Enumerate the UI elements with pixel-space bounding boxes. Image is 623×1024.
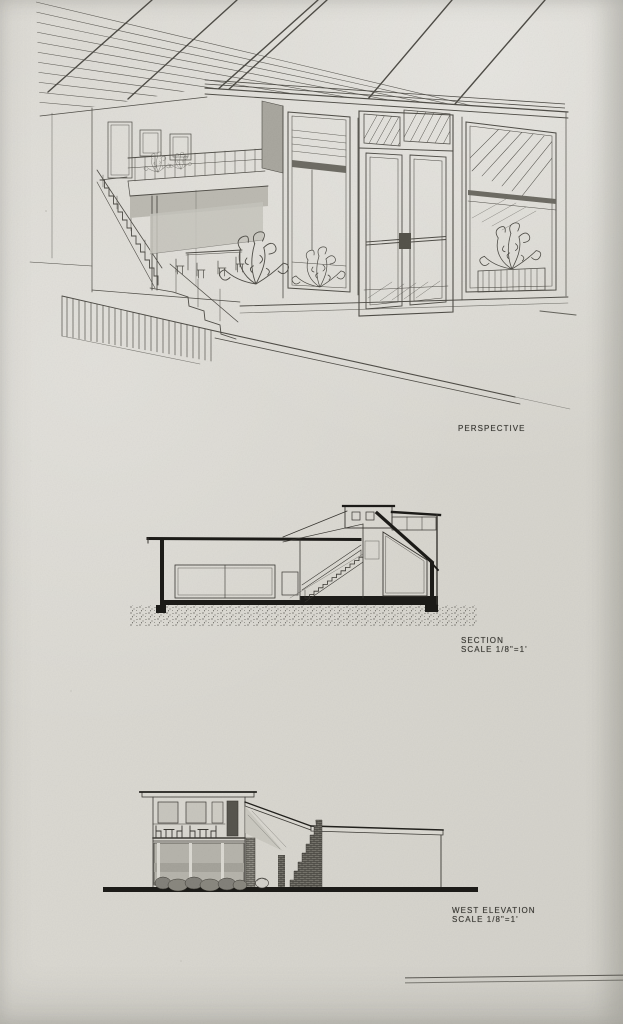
double-door bbox=[359, 111, 453, 316]
elevation-left-block bbox=[140, 792, 256, 888]
left-wall-poche bbox=[160, 538, 164, 605]
section-drawing bbox=[130, 486, 480, 638]
clerestory-glazing bbox=[392, 517, 436, 530]
elevation-right-wing bbox=[245, 802, 443, 887]
door-handle bbox=[399, 233, 411, 249]
brick-chimney bbox=[290, 820, 322, 888]
glass-wall bbox=[240, 101, 568, 316]
section-title: SECTION bbox=[461, 636, 528, 645]
foreground bbox=[62, 264, 576, 409]
right-footing bbox=[425, 604, 438, 612]
clerestory-monitor bbox=[343, 506, 394, 528]
footer-rule-top bbox=[405, 975, 623, 979]
stair-roof-diagonal bbox=[377, 513, 432, 562]
west-elevation-title: WEST ELEVATION bbox=[452, 906, 536, 915]
planter-box bbox=[478, 268, 545, 292]
west-elevation-caption: WEST ELEVATION SCALE 1/8"=1' bbox=[452, 906, 536, 924]
west-elevation-scale: SCALE 1/8"=1' bbox=[452, 915, 536, 924]
left-footing bbox=[156, 605, 166, 613]
portfolio-page: PERSPECTIVE bbox=[0, 0, 623, 1024]
brick-pier bbox=[246, 838, 255, 888]
flat-roof bbox=[148, 539, 360, 540]
ceiling-beams bbox=[36, 0, 623, 160]
dining-set bbox=[176, 250, 244, 278]
boulder bbox=[256, 878, 269, 888]
section-scale: SCALE 1/8"=1' bbox=[461, 645, 528, 654]
balcony-chairs bbox=[156, 826, 216, 837]
perspective-drawing bbox=[0, 0, 623, 432]
section-caption: SECTION SCALE 1/8"=1' bbox=[461, 636, 528, 654]
wood-slat-wall bbox=[62, 296, 215, 362]
section-stair bbox=[290, 545, 363, 602]
lower-window bbox=[383, 532, 427, 596]
upper-roof bbox=[392, 512, 440, 515]
sloped-ceiling-line bbox=[283, 511, 347, 537]
footer-rule-bottom bbox=[405, 980, 623, 984]
perspective-caption: PERSPECTIVE bbox=[458, 424, 526, 433]
west-elevation-drawing bbox=[90, 775, 490, 915]
floor-curb-edge bbox=[215, 331, 515, 397]
door bbox=[227, 801, 238, 836]
